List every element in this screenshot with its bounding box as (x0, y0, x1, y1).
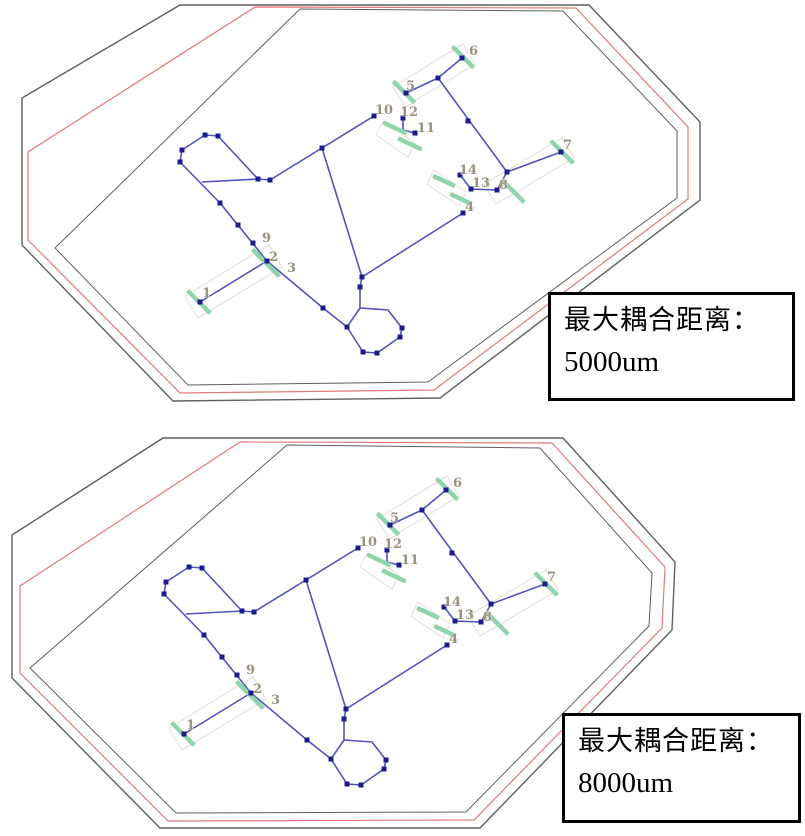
trace-vertex (252, 610, 257, 615)
trace-vertex (450, 551, 455, 556)
trace-vertex (320, 146, 325, 151)
trace-vertex (203, 133, 208, 138)
trace-wire (202, 179, 258, 182)
net-number-label: 1 (202, 286, 211, 301)
trace-wire (322, 148, 362, 277)
net-number-label: 14 (459, 163, 477, 178)
cad-layout-scene: 12345678910111213141234567891011121314 (0, 0, 805, 836)
net-number-label: 11 (401, 553, 419, 568)
net-number-label: 4 (449, 632, 458, 647)
trace-wire (306, 580, 346, 709)
trace-vertex (460, 56, 465, 61)
trace-wire (180, 135, 258, 203)
net-number-label: 2 (253, 682, 262, 697)
net-number-label: 13 (472, 176, 490, 191)
trace-vertex (305, 738, 310, 743)
trace-vertex (251, 241, 256, 246)
trace-vertex (382, 767, 387, 772)
trace-wire (362, 213, 463, 277)
trace-wire (204, 635, 251, 693)
trace-wire (422, 510, 491, 604)
trace-vertex (178, 160, 183, 165)
trace-vertex (236, 223, 241, 228)
net-number-label: 8 (483, 610, 492, 625)
trace-vertex (360, 275, 365, 280)
net-number-label: 10 (359, 535, 377, 550)
net-number-label: 9 (262, 231, 271, 246)
trace-vertex (400, 326, 405, 331)
net-number-label: 8 (499, 178, 508, 193)
trace-vertex (489, 602, 494, 607)
trace-vertex (436, 76, 441, 81)
trace-vertex (342, 717, 347, 722)
max-coupling-value-top: 5000um (564, 345, 792, 379)
net-number-label: 10 (375, 103, 393, 118)
net-number-label: 4 (465, 200, 474, 215)
net-number-label: 5 (390, 511, 399, 526)
net-number-label: 13 (456, 608, 474, 623)
max-coupling-caption-bottom: 最大耦合距离： (578, 724, 798, 758)
net-number-label: 1 (186, 718, 195, 733)
board-outline-inner-bottom (30, 445, 652, 813)
net-number-label: 7 (563, 138, 572, 153)
trace-vertex (202, 633, 207, 638)
net-number-label: 7 (547, 570, 556, 585)
trace-vertex (359, 783, 364, 788)
trace-vertex (220, 655, 225, 660)
net-number-label: 12 (400, 105, 418, 120)
trace-vertex (162, 592, 167, 597)
trace-vertex (268, 178, 273, 183)
trace-wire (344, 709, 346, 740)
trace-vertex (505, 170, 510, 175)
coupling-region-outline (377, 476, 459, 539)
trace-vertex (304, 578, 309, 583)
trace-vertex (321, 306, 326, 311)
trace-vertex (180, 148, 185, 153)
trace-vertex (444, 488, 449, 493)
net-number-label: 12 (384, 537, 402, 552)
trace-vertex (384, 758, 389, 763)
net-number-label: 14 (443, 595, 461, 610)
net-number-label: 6 (469, 44, 478, 59)
net-number-label: 6 (453, 476, 462, 491)
trace-vertex (420, 508, 425, 513)
net-number-label: 9 (246, 663, 255, 678)
coupling-region-outline (393, 44, 475, 107)
net-number-label: 3 (271, 693, 280, 708)
trace-wire (347, 308, 360, 327)
trace-vertex (218, 201, 223, 206)
trace-wire (164, 567, 242, 635)
trace-vertex (344, 707, 349, 712)
trace-vertex (361, 350, 366, 355)
trace-vertex (256, 177, 261, 182)
trace-wire (220, 203, 267, 261)
trace-vertex (329, 757, 334, 762)
trace-wire (360, 277, 362, 308)
net-number-label: 2 (269, 250, 278, 265)
trace-vertex (345, 782, 350, 787)
trace-wire (438, 78, 507, 172)
trace-vertex (235, 673, 240, 678)
max-coupling-label-box-top: 最大耦合距离： 5000um (548, 292, 795, 401)
figure-canvas: 12345678910111213141234567891011121314 最… (0, 0, 805, 836)
trace-wire (331, 740, 344, 759)
trace-wire (346, 645, 447, 709)
max-coupling-caption-top: 最大耦合距离： (564, 303, 792, 337)
max-coupling-label-box-bottom: 最大耦合距离： 8000um (562, 713, 801, 823)
trace-vertex (200, 566, 205, 571)
trace-wire (307, 740, 331, 759)
net-number-label: 5 (406, 79, 415, 94)
trace-vertex (375, 351, 380, 356)
net-number-label: 11 (417, 121, 435, 136)
trace-vertex (345, 325, 350, 330)
trace-wire (323, 308, 347, 327)
trace-wire (186, 611, 242, 614)
trace-vertex (187, 565, 192, 570)
net-number-label: 3 (287, 261, 296, 276)
trace-vertex (466, 119, 471, 124)
max-coupling-value-bottom: 8000um (578, 766, 798, 800)
trace-vertex (240, 609, 245, 614)
trace-vertex (398, 335, 403, 340)
trace-vertex (164, 580, 169, 585)
trace-vertex (358, 285, 363, 290)
trace-vertex (216, 134, 221, 139)
